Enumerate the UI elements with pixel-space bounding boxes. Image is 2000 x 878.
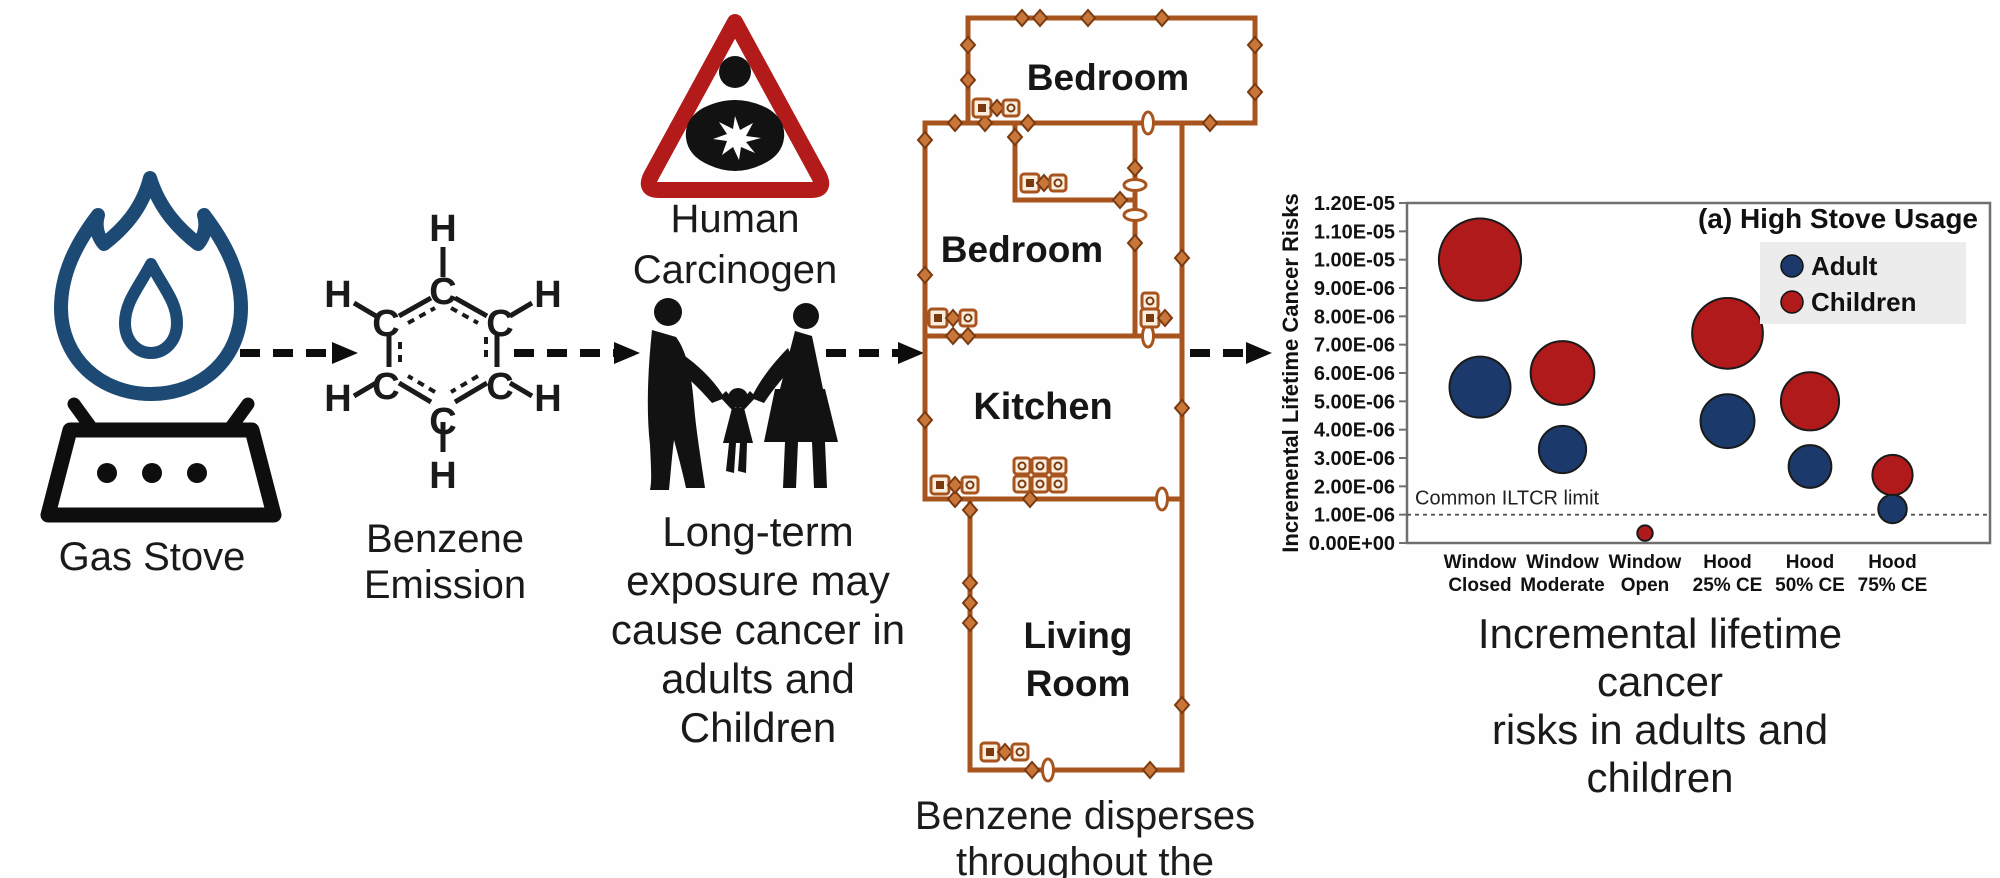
hydrogen-atom: H — [534, 274, 561, 316]
carbon-atom: C — [372, 366, 399, 408]
hydrogen-atom: H — [429, 208, 456, 250]
y-tick-label: 2.00E-06 — [1314, 476, 1395, 498]
y-tick-label: 1.20E-05 — [1314, 193, 1395, 215]
bubble-children-0 — [1439, 219, 1521, 301]
y-axis-title: Incremental Lifetime Cancer Risks — [1278, 193, 1303, 552]
y-tick-label: 9.00E-06 — [1314, 278, 1395, 300]
bubble-children-5 — [1872, 455, 1912, 495]
chart-title: (a) High Stove Usage — [1698, 203, 1978, 234]
y-tick-label: 5.00E-06 — [1314, 391, 1395, 413]
room-label-living: Living Room — [958, 612, 1198, 708]
hydrogen-atom: H — [534, 378, 561, 420]
iltcr-limit-label: Common ILTCR limit — [1415, 488, 1600, 510]
hydrogen-atom: H — [429, 455, 456, 497]
carbon-atom: C — [486, 303, 513, 345]
room-label-bedroom-mid: Bedroom — [902, 229, 1142, 271]
y-tick-label: 1.00E-06 — [1314, 505, 1395, 527]
legend-label-children: Children — [1811, 287, 1916, 317]
room-label-bedroom-top: Bedroom — [988, 57, 1228, 99]
y-tick-label: 4.00E-06 — [1314, 420, 1395, 442]
x-category-label: Window — [1526, 552, 1599, 573]
x-category-label: Open — [1621, 575, 1670, 596]
benzene-label: Benzene Emission — [325, 516, 565, 608]
x-category-label: 25% CE — [1693, 575, 1763, 596]
gas-stove-label: Gas Stove — [32, 534, 272, 581]
x-category-label: 75% CE — [1858, 575, 1928, 596]
carcinogen-label: Human Carcinogen — [615, 194, 855, 296]
graphical-abstract: Gas Stove — [0, 0, 2000, 878]
x-category-label: Closed — [1448, 575, 1511, 596]
carbon-atom: C — [429, 271, 456, 313]
bubble-adult-1 — [1539, 426, 1586, 473]
bubble-children-2 — [1637, 525, 1652, 540]
floorplan-caption: Benzene disperses throughout the home — [903, 793, 1267, 878]
bubble-adult-4 — [1789, 445, 1832, 488]
legend-marker-adult — [1781, 255, 1803, 277]
y-tick-label: 8.00E-06 — [1314, 306, 1395, 328]
bubble-children-3 — [1692, 298, 1763, 369]
carbon-atom: C — [429, 401, 456, 443]
x-category-label: Moderate — [1520, 575, 1604, 596]
room-label-kitchen: Kitchen — [923, 386, 1163, 429]
gas-stove-icon — [20, 130, 320, 570]
x-category-label: Hood — [1786, 552, 1835, 573]
x-axis: WindowClosedWindowModerateWindowOpenHood… — [1444, 552, 1928, 596]
x-category-label: Window — [1609, 552, 1682, 573]
carcinogen-warning-icon — [615, 8, 855, 203]
x-category-label: 50% CE — [1775, 575, 1845, 596]
y-tick-label: 7.00E-06 — [1314, 335, 1395, 357]
bubble-adult-3 — [1701, 394, 1755, 448]
bubble-adult-5 — [1878, 495, 1906, 523]
bubble-children-4 — [1781, 372, 1839, 430]
family-silhouette — [625, 285, 895, 500]
bubble-children-1 — [1531, 341, 1595, 405]
exposure-text: Long-term exposure may cause cancer in a… — [593, 507, 923, 752]
flame-icon — [61, 178, 241, 394]
y-tick-label: 6.00E-06 — [1314, 363, 1395, 385]
legend-marker-children — [1781, 291, 1803, 313]
legend-label-adult: Adult — [1811, 251, 1878, 281]
x-category-label: Window — [1444, 552, 1517, 573]
benzene-molecule: C C C C C C H H H H H H — [310, 195, 580, 505]
y-axis: 0.00E+001.00E-062.00E-063.00E-064.00E-06… — [1309, 193, 1407, 555]
stove-base-icon — [48, 404, 274, 515]
y-tick-label: 0.00E+00 — [1309, 533, 1395, 555]
hydrogen-atom: H — [324, 378, 351, 420]
hydrogen-atom: H — [324, 274, 351, 316]
chart-caption: Incremental lifetime cancer risks in adu… — [1430, 610, 1890, 802]
cancer-risk-bubble-chart: 0.00E+001.00E-062.00E-063.00E-064.00E-06… — [1280, 140, 2000, 610]
carbon-atom: C — [372, 303, 399, 345]
y-tick-label: 1.00E-05 — [1314, 250, 1395, 272]
y-tick-label: 1.10E-05 — [1314, 221, 1395, 243]
y-tick-label: 3.00E-06 — [1314, 448, 1395, 470]
x-category-label: Hood — [1868, 552, 1917, 573]
carbon-atom: C — [486, 366, 513, 408]
x-category-label: Hood — [1703, 552, 1752, 573]
chart-legend: AdultChildren — [1760, 242, 1966, 324]
bubble-adult-0 — [1450, 357, 1511, 418]
